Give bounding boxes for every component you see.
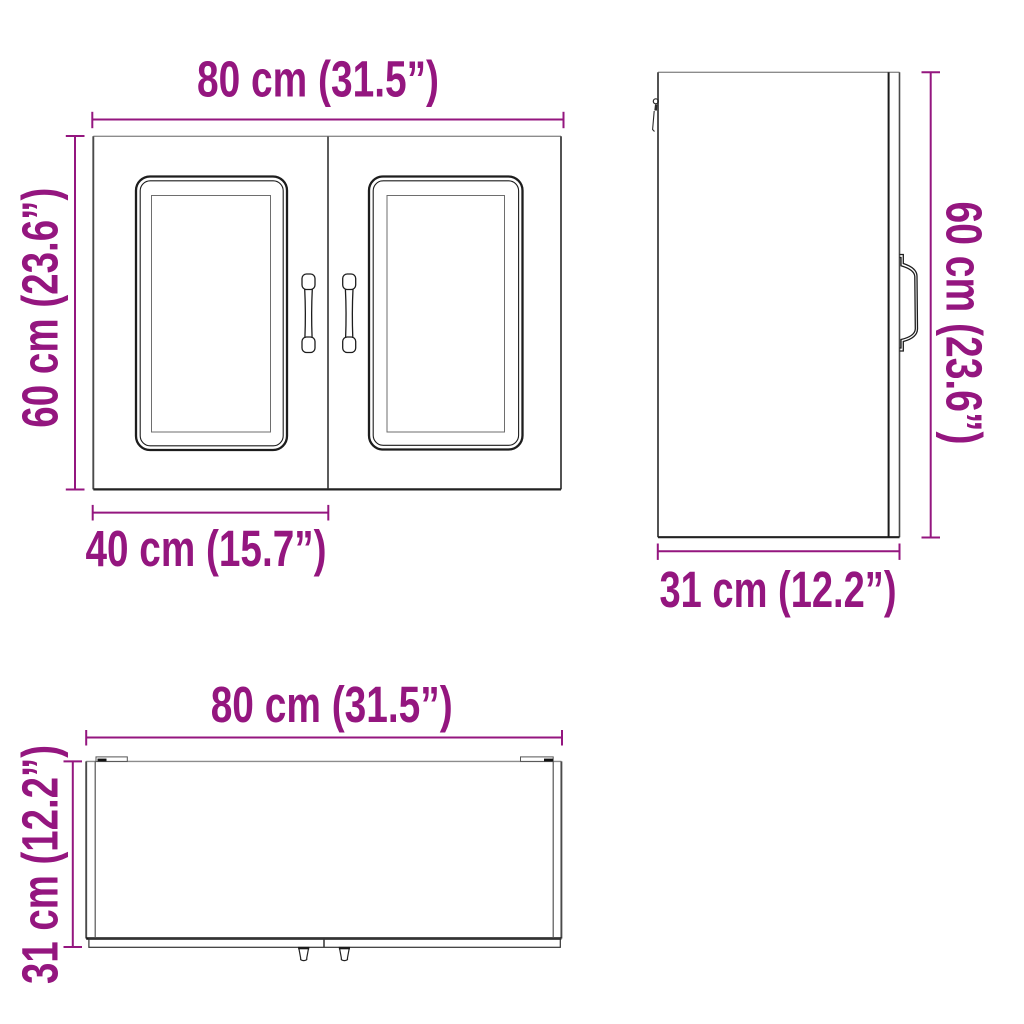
svg-text:40 cm (15.7”): 40 cm (15.7”) [86,520,327,577]
svg-text:80 cm (31.5”): 80 cm (31.5”) [197,51,439,108]
svg-text:31 cm (12.2”): 31 cm (12.2”) [660,561,897,618]
svg-text:60 cm (23.6”): 60 cm (23.6”) [936,202,993,445]
svg-text:80 cm (31.5”): 80 cm (31.5”) [211,676,453,733]
svg-text:31 cm (12.2”): 31 cm (12.2”) [11,745,68,984]
svg-text:60 cm (23.6”): 60 cm (23.6”) [12,188,69,428]
